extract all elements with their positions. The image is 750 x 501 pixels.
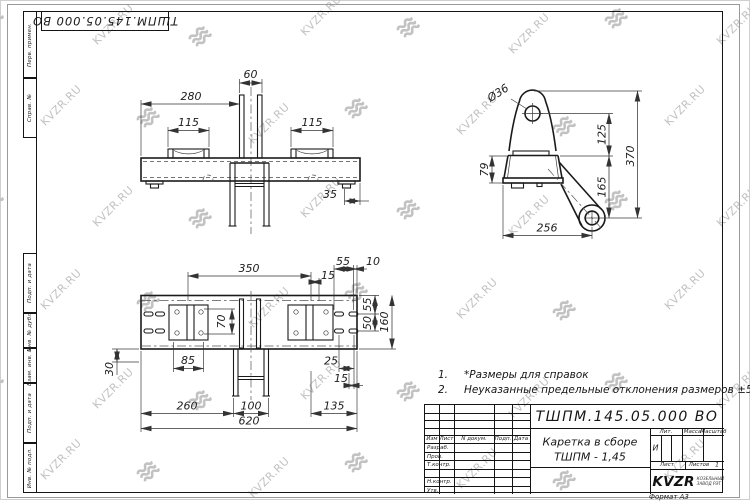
tb-header-data: Дата — [514, 436, 528, 442]
company-logo: KVZR КОЗЕЛЬНЫЙ ЗАВОД РЭТ — [650, 469, 724, 494]
title-block: ТШПМ.145.05.000 ВО Изм Лист N докум. Под… — [424, 404, 723, 493]
tb-header-doc: N докум. — [461, 436, 487, 442]
drawing-sheet: { "watermark": { "text": "KVZR.RU", "col… — [0, 0, 750, 500]
tb-row-utv: Утв. — [427, 488, 439, 494]
tb-lit-value: И — [653, 444, 659, 453]
margin-box-inv-podl: Инв. № подл. — [23, 443, 37, 493]
note-1-number: 1. — [438, 369, 448, 381]
frame-layer: ТШПМ.145.05.000 ВО Перв. примен. Справ. … — [1, 1, 750, 501]
tb-row-nkontr: Н.контр. — [427, 479, 452, 485]
margin-box-podp-data-2: Подп. и дата — [23, 383, 37, 443]
tb-designation: ТШПМ.145.05.000 ВО — [536, 409, 719, 425]
margin-label: Подп. и дата — [27, 263, 33, 303]
tb-sheets-value: 1 — [715, 462, 719, 469]
margin-box-sprav: Справ. № — [23, 78, 37, 138]
margin-box-inv-dubl: Инв. № дубл. — [23, 313, 37, 348]
margin-box-podp-data-1: Подп. и дата — [23, 253, 37, 313]
tb-sheet-label: Лист — [660, 462, 674, 468]
tb-row-razrab: Разраб. — [427, 445, 449, 451]
tb-sheets-label: Листов — [689, 462, 710, 468]
margin-box-perv-primen: Перв. примен. — [23, 11, 37, 78]
tb-name-line2: ТШПМ - 1,45 — [554, 451, 626, 464]
tb-header-izm: Изм — [426, 436, 437, 442]
tb-row-tkontr: Т.контр. — [427, 462, 451, 468]
company-name: KVZR — [652, 474, 694, 490]
company-sub2: ЗАВОД РЭТ — [697, 482, 724, 487]
tb-header-podp: Подп. — [495, 436, 512, 442]
tb-lit-header: Лит. — [660, 429, 673, 435]
margin-label: Справ. № — [27, 94, 33, 122]
note-2-text: Неуказанные предельные отклонения размер… — [464, 384, 750, 396]
margin-label: Подп. и дата — [27, 393, 33, 433]
tb-row-prov: Пров. — [427, 454, 443, 460]
tb-mass-header: Масса — [684, 429, 702, 435]
tb-scale-header: Масштаб — [700, 429, 726, 435]
note-2-number: 2. — [438, 384, 448, 396]
margin-label: Инв. № дубл. — [27, 310, 33, 350]
tb-header-list: Лист — [440, 436, 454, 442]
top-designation-stamp: ТШПМ.145.05.000 ВО — [41, 11, 169, 31]
margin-label: Инв. № подл. — [27, 448, 33, 488]
margin-box-vzam-inv: Взам. инв. № — [23, 348, 37, 383]
tb-name-line1: Каретка в сборе — [543, 436, 638, 449]
top-designation-text: ТШПМ.145.05.000 ВО — [32, 14, 178, 28]
margin-label: Взам. инв. № — [27, 346, 33, 386]
margin-label: Перв. примен. — [27, 23, 33, 67]
note-1-text: *Размеры для справок — [464, 369, 589, 381]
